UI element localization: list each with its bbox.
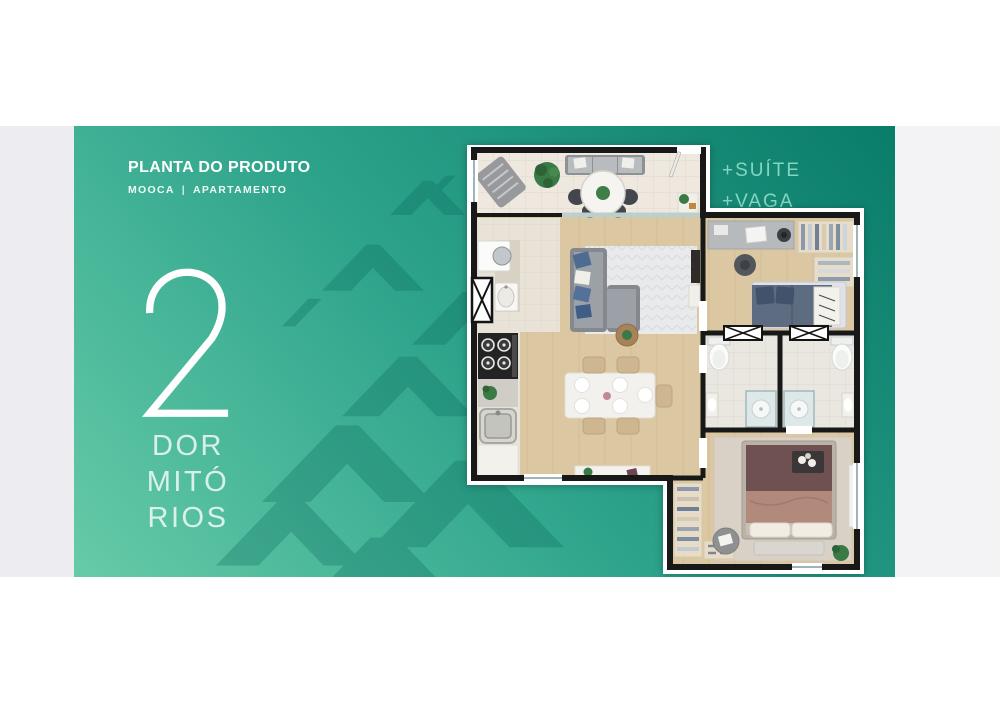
- subtitle-type: APARTAMENTO: [193, 184, 287, 196]
- shower-left: [746, 391, 776, 427]
- page-title: PLANTA DO PRODUTO: [128, 159, 311, 177]
- washer: [478, 241, 511, 271]
- product-plan-card: PLANTA DO PRODUTO MOOCA|APARTAMENTO 2 DO…: [74, 126, 895, 577]
- subtitle-location: MOOCA: [128, 184, 175, 196]
- dining-table: [565, 373, 655, 418]
- label-line-1: DOR: [126, 428, 250, 464]
- pouf: [713, 528, 739, 554]
- floor-plan-drawing: [462, 145, 868, 574]
- shower-right: [784, 391, 814, 427]
- label-line-3: RIOS: [126, 500, 250, 536]
- subtitle: MOOCA|APARTAMENTO: [128, 184, 311, 196]
- left-gray-band: [0, 126, 74, 577]
- label-line-2: MITÓ: [126, 464, 250, 500]
- kitchen-cabinet: [478, 445, 518, 476]
- bed-bench: [754, 541, 824, 555]
- coffee-table: [616, 324, 638, 346]
- desk: [708, 221, 794, 249]
- toilet-right: [831, 337, 853, 370]
- laundry-sink: [495, 283, 518, 311]
- bath-sink-right: [842, 393, 854, 417]
- toilet-left: [708, 337, 730, 370]
- card-header: PLANTA DO PRODUTO MOOCA|APARTAMENTO: [128, 159, 311, 196]
- stove: [478, 333, 518, 379]
- bedroom-count-label: DOR MITÓ RIOS: [126, 428, 250, 536]
- round-table: [581, 171, 625, 215]
- bedroom-count-block: 2 DOR MITÓ RIOS: [126, 262, 250, 536]
- subtitle-divider: |: [182, 184, 186, 196]
- floor-plan: [462, 145, 868, 574]
- balcony-plant: [534, 162, 560, 188]
- double-bed: [742, 441, 836, 539]
- kitchen-counter: [478, 379, 518, 407]
- kitchen-sink: [480, 409, 516, 443]
- glass-slider: [562, 213, 700, 218]
- entry-shelf: [678, 193, 698, 213]
- bath-sink-left: [706, 393, 718, 417]
- desk-chair: [734, 254, 756, 276]
- big-number-glyph: [132, 262, 244, 426]
- right-gray-band: [895, 126, 1000, 577]
- page: PLANTA DO PRODUTO MOOCA|APARTAMENTO 2 DO…: [0, 0, 1000, 706]
- single-bed: [752, 282, 846, 328]
